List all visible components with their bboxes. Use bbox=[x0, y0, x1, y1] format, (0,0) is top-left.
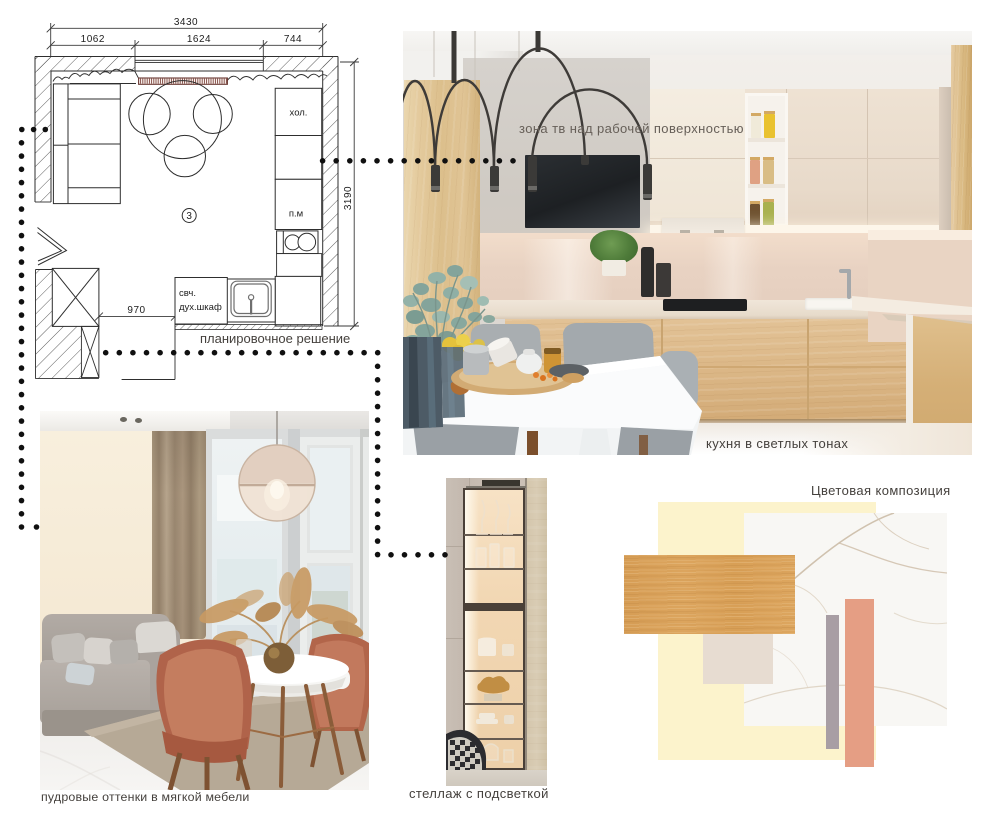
svg-text:планировочное решение: планировочное решение bbox=[200, 331, 350, 346]
svg-text:744: 744 bbox=[284, 34, 302, 45]
svg-text:п.м: п.м bbox=[289, 209, 303, 220]
svg-text:дух.шкаф: дух.шкаф bbox=[179, 302, 222, 313]
svg-text:хол.: хол. bbox=[290, 108, 308, 119]
svg-text:1062: 1062 bbox=[81, 34, 105, 45]
svg-text:3190: 3190 bbox=[343, 186, 354, 210]
svg-text:3: 3 bbox=[186, 211, 192, 222]
svg-text:3430: 3430 bbox=[174, 17, 198, 28]
svg-text:1624: 1624 bbox=[187, 34, 211, 45]
svg-text:970: 970 bbox=[127, 305, 145, 316]
svg-text:свч.: свч. bbox=[179, 288, 196, 299]
